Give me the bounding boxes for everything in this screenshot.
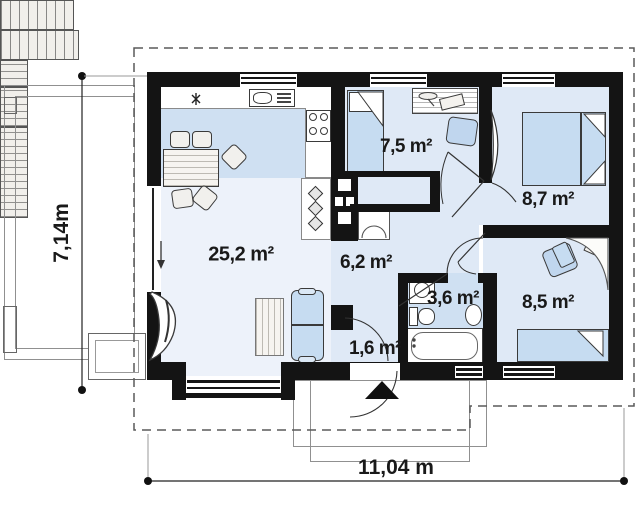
room-label-hallway: 6,2 m² [340,252,392,274]
rug-icon [255,298,284,356]
wardrobe-icon-hall-2 [0,30,79,60]
shaft-vent-2 [335,197,343,206]
bed-icon-right-top [522,112,606,186]
floor-plan: 25,2 m² 7,5 m² 8,7 m² 6,2 m² 3,6 m² 8,5 … [0,0,640,506]
porch-steps-inner [310,380,470,462]
bay-jamb-right [281,362,295,400]
sofa-armrest-top [298,288,316,295]
bed-pillow-top [349,92,384,112]
dimension-label-width: 11,04 m [358,456,434,480]
burner-3 [309,127,317,135]
dim-dot [144,477,152,485]
outdoor-step-inner [95,340,139,373]
bathtub-inner [411,332,478,360]
wall-stub-vestibule [331,305,353,330]
desk-chair-top [445,116,478,147]
wardrobe-wall-mid [350,204,440,212]
wall-bathroom-right [483,273,497,362]
terrace-post-bottom [3,306,17,353]
wardrobe-icon-rt-1 [0,60,28,87]
terrace-post-top [4,97,17,114]
window-bedroom-top [370,74,427,87]
wardrobe-wall-jamb [430,171,440,212]
toilet-icon [409,307,418,326]
terrace-inner-outline [15,96,135,349]
terrace-door-opening [147,186,161,292]
wall-bedrooms-divider [479,72,492,183]
room-label-bedroom-top: 7,5 m² [380,136,432,158]
room-label-bedroom-right-top: 8,7 m² [522,189,574,211]
doorway-floor-1 [331,330,345,362]
sofa-split [292,324,323,326]
room-label-living: 25,2 m² [208,244,273,267]
window-bedroom-right-top [502,74,555,87]
dining-chair-4 [171,188,194,210]
entrance-door-opening [350,363,400,380]
bay-sill [186,393,281,398]
kitchen-counter-top [161,87,331,109]
terrace-door-glass [152,188,154,290]
kitchen-sink-bowl [253,92,272,104]
wall-kitchen-divider [331,72,345,177]
window-bedroom-right-bottom [503,366,555,378]
burner-2 [320,113,328,121]
kitchen-sink-drainer [277,93,291,95]
doorway-floor-3 [483,238,497,273]
window-kitchen [240,74,297,87]
bay-window [186,376,281,393]
wall-bedrooms-horizontal [483,225,609,238]
dim-dot [78,72,86,80]
bay-floor [186,362,281,376]
dimension-label-height: 7,14m [50,203,74,263]
dining-table-icon [163,149,219,187]
window-bathroom [455,366,483,378]
burner-1 [309,113,317,121]
sofa-icon [291,290,324,361]
wall-bathroom-top-1 [398,273,448,283]
shaft-vent-4 [338,212,351,224]
dining-chair-2 [192,131,212,148]
wardrobe-wall-top [345,171,440,177]
wardrobe-icon-hall-1 [0,0,74,30]
dim-dot [78,386,86,394]
burner-4 [320,127,328,135]
room-label-bedroom-right-bottom: 8,5 m² [522,292,574,314]
room-label-bathroom: 3,6 m² [427,288,479,310]
bed-icon-right-bottom [517,329,609,362]
dining-chair-1 [170,131,190,148]
hall-cabinet [358,211,390,240]
bed-line [580,113,582,185]
room-label-vestibule: 1,6 m² [349,338,401,360]
bay-jamb-left [172,362,186,400]
dim-dot [620,477,628,485]
doorway-floor-2 [479,183,492,225]
wall-right [609,72,623,380]
toilet-bowl [418,308,435,325]
shaft-vent-1 [338,179,351,191]
